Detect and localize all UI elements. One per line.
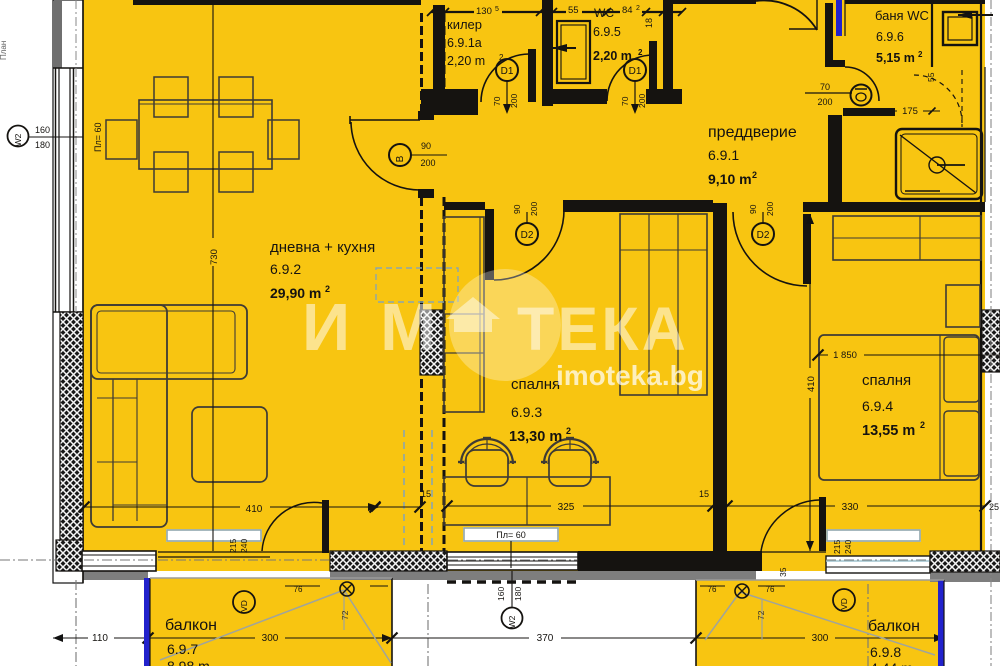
svg-text:35: 35 <box>778 567 788 577</box>
svg-text:410: 410 <box>246 504 263 515</box>
svg-text:18: 18 <box>644 18 654 28</box>
svg-text:200: 200 <box>765 202 775 216</box>
svg-text:55: 55 <box>568 5 579 16</box>
svg-text:ТЕКА: ТЕКА <box>517 295 689 363</box>
svg-text:6.9.4: 6.9.4 <box>862 398 893 414</box>
svg-text:90: 90 <box>421 141 431 151</box>
svg-text:2,20 m: 2,20 m <box>593 49 632 63</box>
svg-text:килер: килер <box>447 17 482 32</box>
svg-text:VD: VD <box>839 598 849 610</box>
svg-text:240: 240 <box>843 540 853 554</box>
svg-text:балкон: балкон <box>868 618 920 635</box>
svg-text:балкон: балкон <box>165 617 217 634</box>
svg-text:2: 2 <box>752 170 757 180</box>
svg-text:2: 2 <box>638 48 643 57</box>
svg-text:D2: D2 <box>521 230 534 241</box>
svg-text:325: 325 <box>558 502 575 513</box>
svg-text:200: 200 <box>529 202 539 216</box>
svg-text:180: 180 <box>513 587 523 601</box>
svg-text:15: 15 <box>699 489 709 499</box>
svg-text:240: 240 <box>239 539 249 553</box>
svg-text:D1: D1 <box>629 66 642 77</box>
svg-text:6.9.3: 6.9.3 <box>511 404 542 420</box>
svg-text:VD: VD <box>239 600 249 612</box>
svg-text:76: 76 <box>766 585 775 594</box>
svg-text:W2: W2 <box>507 615 517 628</box>
svg-text:25: 25 <box>989 502 999 512</box>
svg-text:6.9.2: 6.9.2 <box>270 261 301 277</box>
svg-text:130: 130 <box>476 6 492 17</box>
svg-text:2: 2 <box>499 53 504 62</box>
svg-text:2: 2 <box>636 5 640 12</box>
svg-text:15: 15 <box>421 489 431 499</box>
svg-text:D2: D2 <box>757 230 770 241</box>
svg-text:215: 215 <box>228 539 238 553</box>
svg-text:6.9.8: 6.9.8 <box>870 644 901 660</box>
svg-text:200: 200 <box>637 94 647 108</box>
svg-text:B: B <box>395 155 406 162</box>
svg-text:6.9.1a: 6.9.1a <box>447 36 482 50</box>
svg-text:70: 70 <box>620 96 630 106</box>
svg-text:WC: WC <box>594 6 614 20</box>
svg-text:2: 2 <box>566 426 571 436</box>
svg-text:4,44 m: 4,44 m <box>870 660 913 666</box>
svg-text:2: 2 <box>918 50 923 59</box>
svg-text:90: 90 <box>512 204 522 214</box>
svg-text:2: 2 <box>920 420 925 430</box>
svg-text:13,30 m: 13,30 m <box>509 429 562 445</box>
svg-text:6.9.6: 6.9.6 <box>876 30 904 44</box>
svg-text:5,15 m: 5,15 m <box>876 51 915 65</box>
svg-text:6.9.5: 6.9.5 <box>593 25 621 39</box>
svg-text:76: 76 <box>708 585 717 594</box>
svg-text:160: 160 <box>496 587 506 601</box>
svg-text:6.9.7: 6.9.7 <box>167 641 198 657</box>
svg-text:300: 300 <box>812 633 829 644</box>
svg-text:200: 200 <box>420 158 435 168</box>
svg-text:300: 300 <box>262 633 279 644</box>
svg-text:730: 730 <box>209 249 220 265</box>
svg-text:175: 175 <box>902 106 918 117</box>
svg-text:8,98 m: 8,98 m <box>167 658 210 666</box>
svg-text:Пл= 60: Пл= 60 <box>93 123 103 153</box>
svg-text:215: 215 <box>832 540 842 554</box>
svg-text:спалня: спалня <box>862 372 911 389</box>
svg-text:370: 370 <box>537 633 554 644</box>
svg-text:76: 76 <box>294 585 303 594</box>
svg-text:200: 200 <box>509 94 519 108</box>
svg-text:Пл= 60: Пл= 60 <box>496 530 526 540</box>
svg-text:410: 410 <box>806 376 817 392</box>
svg-text:6.9.1: 6.9.1 <box>708 147 739 163</box>
svg-text:преддверие: преддверие <box>708 124 797 141</box>
svg-text:13,55 m: 13,55 m <box>862 423 915 439</box>
svg-text:5: 5 <box>495 6 499 13</box>
svg-text:баня WC: баня WC <box>875 8 929 23</box>
svg-text:90: 90 <box>748 204 758 214</box>
svg-text:2,20 m: 2,20 m <box>447 54 485 68</box>
svg-text:9,10 m: 9,10 m <box>708 171 752 187</box>
svg-text:W2: W2 <box>13 133 23 146</box>
svg-text:D1: D1 <box>501 66 514 77</box>
svg-text:200: 200 <box>817 97 832 107</box>
svg-text:110: 110 <box>92 633 108 644</box>
svg-text:84: 84 <box>622 5 633 16</box>
svg-text:72: 72 <box>340 610 350 620</box>
svg-text:330: 330 <box>842 502 859 513</box>
svg-text:1 850: 1 850 <box>833 350 857 361</box>
svg-text:180: 180 <box>35 140 50 150</box>
svg-text:ИМ: ИМ <box>302 290 466 365</box>
svg-text:imoteka.bg: imoteka.bg <box>556 360 704 391</box>
svg-text:дневна + кухня: дневна + кухня <box>270 239 375 256</box>
svg-text:160: 160 <box>35 125 50 135</box>
svg-text:План: План <box>0 41 8 60</box>
svg-text:70: 70 <box>820 82 830 92</box>
svg-text:72: 72 <box>756 610 766 620</box>
svg-text:70: 70 <box>492 96 502 106</box>
